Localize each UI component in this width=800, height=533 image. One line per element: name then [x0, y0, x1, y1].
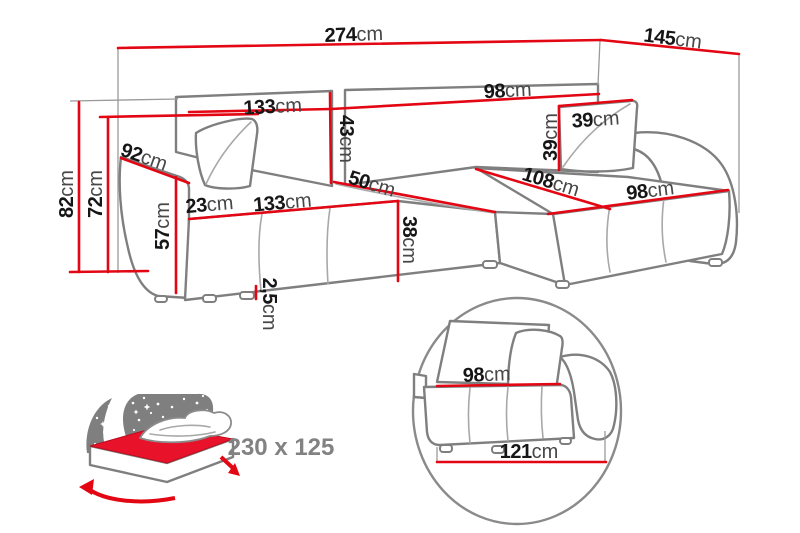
dim-pillow-height-label: 39cm — [540, 113, 562, 161]
detail-leg — [560, 438, 571, 444]
dim-total-depth-label: 145cm — [642, 25, 703, 54]
pullout-arrow-head — [79, 479, 94, 495]
sofa-leg — [240, 292, 254, 299]
dim-height-total-label: 82cm — [56, 170, 78, 218]
sleeping-area-size: 230 x 125 — [228, 434, 335, 461]
diagram-canvas: 274cm 145cm 98cm 133cm 43cm 82cm 72cm 92… — [0, 0, 800, 533]
detail-pillow — [508, 330, 563, 392]
extension-line — [70, 99, 178, 101]
dim-total-width-label: 274cm — [324, 23, 383, 47]
dim-seat-height-label: 38cm — [398, 216, 420, 264]
sleeper-function-icon: 230 x 125 — [79, 394, 334, 501]
sofa-leg — [483, 261, 497, 268]
dim-pillow-width-label: 39cm — [571, 107, 620, 132]
sofa-leg — [155, 296, 167, 302]
dim-backrest-height-label: 43cm — [335, 115, 357, 163]
dim-arm-width-label: 23cm — [185, 192, 235, 218]
dim-leg-clearance-label: 2,5cm — [258, 278, 280, 331]
detail-leg — [440, 445, 452, 452]
dim-ext-floor — [70, 271, 148, 272]
detail-total-width-label: 121cm — [500, 441, 559, 463]
sofa-leg — [556, 281, 569, 288]
pullout-arrow — [87, 488, 175, 501]
dim-backrest-right-label: 98cm — [483, 79, 532, 103]
dim-height-backrest-label: 72cm — [85, 170, 107, 218]
extension-line — [598, 40, 600, 85]
sofa-leg — [203, 295, 216, 302]
sofa-dimension-diagram: 274cm 145cm 98cm 133cm 43cm 82cm 72cm 92… — [0, 0, 800, 533]
detail-seat-width-label: 98cm — [462, 363, 511, 387]
dim-backrest-left-label: 133cm — [243, 94, 303, 119]
chaise-left-face — [495, 212, 565, 285]
armrest-module-detail: 98cm 121cm — [413, 298, 621, 524]
dim-line-backrest-height — [330, 93, 331, 183]
dim-arm-height-label: 57cm — [152, 202, 174, 250]
sofa-leg — [709, 259, 722, 266]
detail-seat — [424, 385, 574, 445]
left-pillow — [196, 119, 258, 189]
